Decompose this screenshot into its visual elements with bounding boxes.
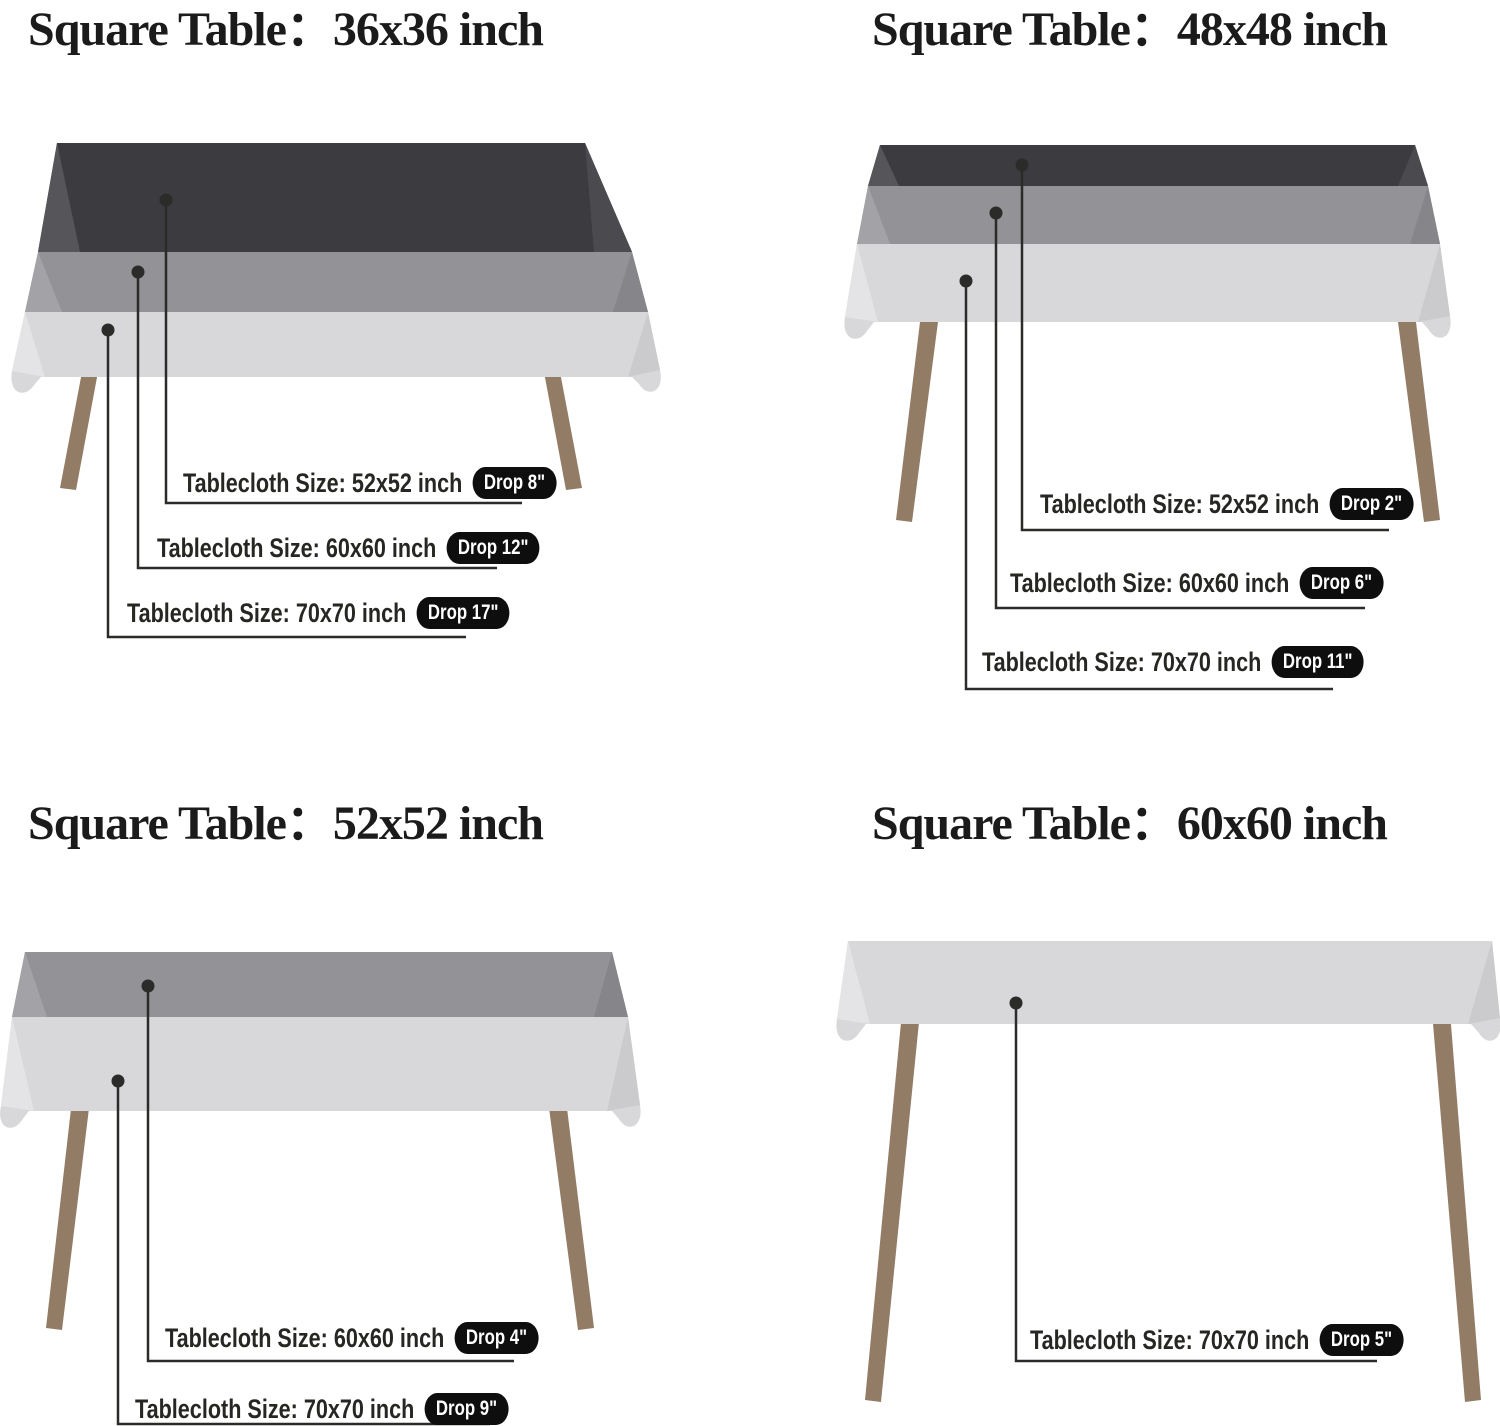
drop-badge: Drop 11" — [1272, 646, 1364, 678]
callout-row-52-70x70: Tablecloth Size: 70x70 inch Drop 9" — [135, 1393, 508, 1425]
tables-graphic — [0, 0, 1500, 1426]
callout-row-36-60x60: Tablecloth Size: 60x60 inch Drop 12" — [157, 532, 540, 564]
table-leg-left — [46, 1100, 90, 1330]
tablecloth-60x60-layer — [857, 186, 1440, 244]
quadrant-title-60x60: Square Table：60x60 inch — [872, 796, 1387, 852]
size-label: Tablecloth Size: 52x52 inch — [183, 468, 462, 499]
quadrant-title-36x36: Square Table：36x36 inch — [28, 2, 543, 58]
size-label: Tablecloth Size: 60x60 inch — [165, 1323, 444, 1354]
table-leg-left — [60, 372, 98, 490]
size-label: Tablecloth Size: 60x60 inch — [157, 533, 436, 564]
table-leg-right — [1432, 1012, 1481, 1402]
callout-line-70x70 — [118, 1087, 490, 1424]
table-leg-left — [896, 322, 938, 522]
callout-row-60-70x70: Tablecloth Size: 70x70 inch Drop 5" — [1030, 1324, 1403, 1356]
callout-row-48-70x70: Tablecloth Size: 70x70 inch Drop 11" — [982, 646, 1364, 678]
size-label: Tablecloth Size: 60x60 inch — [1010, 568, 1289, 599]
callout-line-70x70 — [1016, 1009, 1377, 1361]
drop-badge: Drop 5" — [1320, 1324, 1404, 1356]
quadrant-title-52x52: Square Table：52x52 inch — [28, 796, 543, 852]
drop-badge: Drop 8" — [473, 467, 557, 499]
callout-row-36-70x70: Tablecloth Size: 70x70 inch Drop 17" — [127, 597, 510, 629]
size-label: Tablecloth Size: 70x70 inch — [982, 647, 1261, 678]
tablecloth-52x52-layer — [868, 145, 1428, 186]
callout-row-36-52x52: Tablecloth Size: 52x52 inch Drop 8" — [183, 467, 556, 499]
callout-dot-70x70 — [102, 324, 115, 337]
callout-row-48-52x52: Tablecloth Size: 52x52 inch Drop 2" — [1040, 488, 1413, 520]
size-label: Tablecloth Size: 52x52 inch — [1040, 489, 1319, 520]
callout-dot-70x70 — [112, 1075, 125, 1088]
drop-badge: Drop 4" — [455, 1322, 539, 1354]
drop-badge: Drop 12" — [447, 532, 540, 564]
callout-dot-52x52 — [160, 194, 173, 207]
callout-dot-60x60 — [132, 266, 145, 279]
tablecloth-70x70-layer — [836, 941, 1500, 1041]
callout-dot-60x60 — [142, 980, 155, 993]
tablecloth-60x60-layer — [12, 952, 628, 1017]
table-leg-right — [548, 1100, 594, 1330]
callout-row-52-60x60: Tablecloth Size: 60x60 inch Drop 4" — [165, 1322, 538, 1354]
quadrant-title-48x48: Square Table：48x48 inch — [872, 2, 1387, 58]
table-leg-left — [865, 1012, 920, 1402]
tablecloth-size-guide: Square Table：36x36 inch Square Table：48x… — [0, 0, 1500, 1426]
callout-dot-60x60 — [990, 207, 1003, 220]
drop-badge: Drop 2" — [1330, 488, 1414, 520]
drop-badge: Drop 9" — [425, 1393, 509, 1425]
callout-dot-70x70 — [1010, 997, 1023, 1010]
tablecloth-70x70-layer — [0, 1017, 641, 1128]
size-label: Tablecloth Size: 70x70 inch — [135, 1394, 414, 1425]
callout-dot-52x52 — [1016, 159, 1029, 172]
size-label: Tablecloth Size: 70x70 inch — [127, 598, 406, 629]
callout-row-48-60x60: Tablecloth Size: 60x60 inch Drop 6" — [1010, 567, 1383, 599]
tablecloth-60x60-layer — [25, 252, 648, 312]
size-label: Tablecloth Size: 70x70 inch — [1030, 1325, 1309, 1356]
table-illustration-48x48 — [844, 145, 1450, 689]
tablecloth-52x52-layer — [38, 143, 632, 252]
drop-badge: Drop 17" — [417, 597, 510, 629]
callout-dot-70x70 — [960, 275, 973, 288]
drop-badge: Drop 6" — [1300, 567, 1384, 599]
